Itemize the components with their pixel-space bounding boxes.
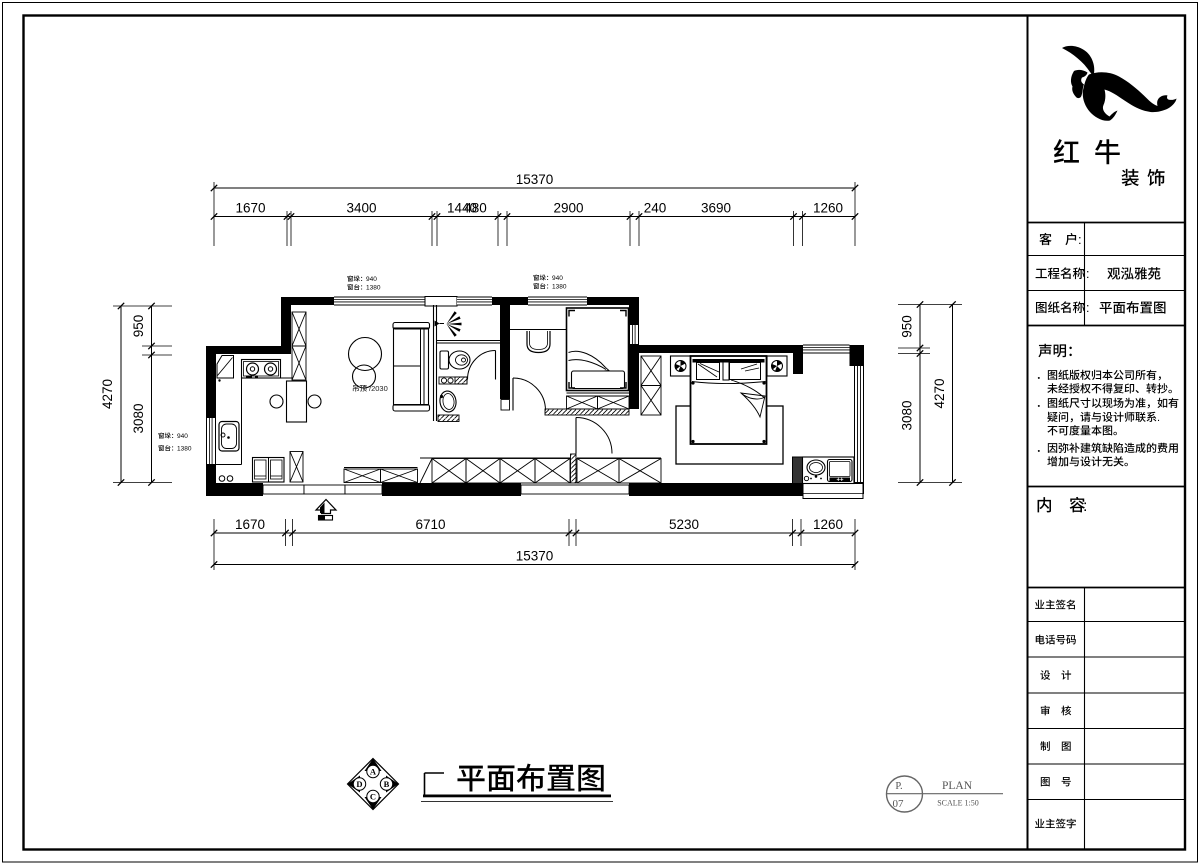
svg-text:15370: 15370	[516, 549, 554, 564]
svg-text:1380: 1380	[552, 284, 567, 291]
svg-text:15370: 15370	[516, 172, 554, 187]
svg-text:A: A	[370, 767, 377, 777]
svg-text:.: .	[1157, 412, 1160, 424]
svg-text:C: C	[370, 792, 376, 802]
svg-text:D: D	[356, 779, 362, 789]
svg-text:3690: 3690	[701, 201, 731, 216]
svg-text::: :	[1078, 232, 1082, 247]
svg-text:6710: 6710	[415, 517, 445, 532]
svg-text:4270: 4270	[100, 379, 115, 409]
svg-text:940: 940	[366, 276, 377, 283]
svg-text:940: 940	[552, 275, 563, 282]
svg-text:07: 07	[893, 798, 905, 810]
svg-text:1380: 1380	[366, 285, 381, 292]
svg-text:++: ++	[836, 478, 844, 484]
svg-text:240: 240	[644, 201, 667, 216]
svg-text:1670: 1670	[235, 517, 265, 532]
svg-text:B: B	[384, 779, 390, 789]
svg-text:3400: 3400	[346, 201, 376, 216]
svg-text:3080: 3080	[900, 400, 915, 430]
svg-text::: :	[1086, 267, 1089, 281]
svg-text:4270: 4270	[932, 378, 947, 408]
svg-text:950: 950	[131, 315, 146, 338]
svg-text:PLAN: PLAN	[942, 780, 973, 792]
svg-text:2900: 2900	[553, 201, 583, 216]
svg-text:1260: 1260	[813, 517, 843, 532]
svg-text:950: 950	[900, 315, 915, 338]
svg-text:940: 940	[177, 433, 188, 440]
svg-text::: :	[1083, 498, 1087, 515]
svg-text:1380: 1380	[177, 446, 192, 453]
svg-text:3080: 3080	[131, 403, 146, 433]
svg-text::: :	[1086, 301, 1089, 315]
svg-text:1260: 1260	[813, 201, 843, 216]
svg-text:5230: 5230	[669, 517, 699, 532]
svg-text:480: 480	[464, 201, 487, 216]
svg-text:1670: 1670	[235, 201, 265, 216]
svg-text:/2030: /2030	[369, 384, 388, 393]
svg-text:SCALE 1:50: SCALE 1:50	[937, 799, 979, 808]
svg-text:P.: P.	[895, 781, 902, 792]
